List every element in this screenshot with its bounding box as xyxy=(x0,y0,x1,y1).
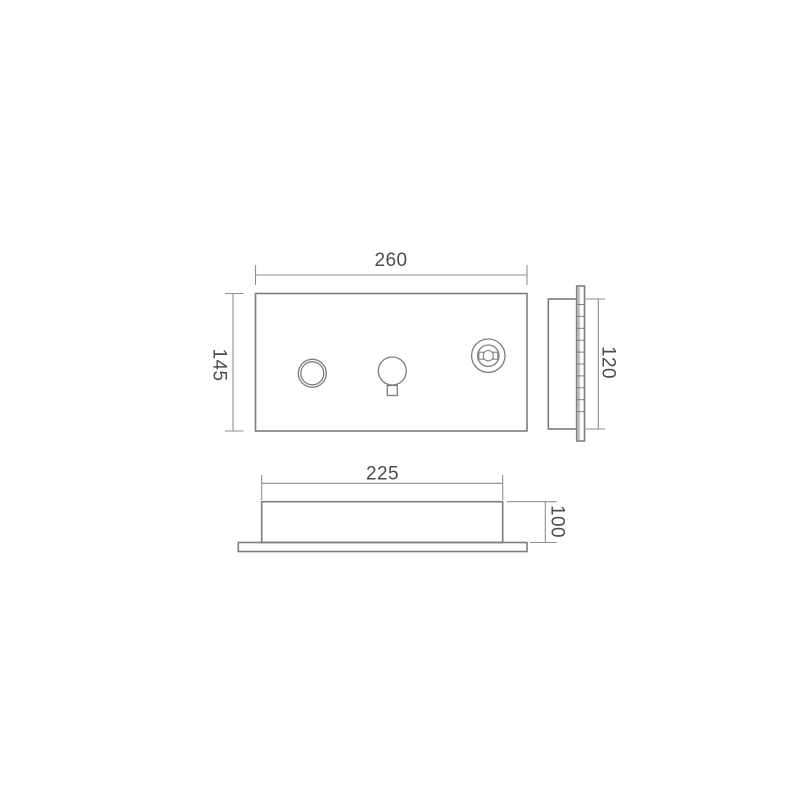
bottom-flange-outline xyxy=(238,543,527,552)
key-switch-right-tab xyxy=(493,352,498,359)
dim-front-width-value: 260 xyxy=(375,250,408,271)
dim-side-height-value: 120 xyxy=(598,346,619,379)
side-view xyxy=(548,286,584,441)
drawing-canvas: 260 145 120 225 100 xyxy=(0,0,800,800)
dim-bottom-height-value: 100 xyxy=(547,505,568,538)
dim-bottom-width-value: 225 xyxy=(366,464,399,485)
bottom-body-outline xyxy=(262,502,503,543)
knob-circle xyxy=(378,357,406,385)
key-switch xyxy=(472,339,505,372)
knob-tab xyxy=(387,386,397,396)
ring-button-outer-circle xyxy=(298,359,326,387)
dim-front-height-value: 145 xyxy=(208,349,229,382)
front-view xyxy=(256,294,528,432)
front-panel-outline xyxy=(256,294,528,432)
key-switch-left-tab xyxy=(479,352,484,359)
bottom-view xyxy=(238,502,527,552)
side-body-outline xyxy=(548,299,576,429)
ring-button xyxy=(298,359,326,387)
key-switch-cylinder-circle xyxy=(483,351,493,361)
side-faceplate-hatch xyxy=(577,305,584,412)
outlines-layer xyxy=(238,286,584,552)
technical-drawing-page: 260 145 120 225 100 xyxy=(0,0,800,800)
ring-button-inner-circle xyxy=(301,362,324,385)
key-switch-outer-circle xyxy=(472,339,505,372)
knob-with-tab xyxy=(378,357,406,396)
